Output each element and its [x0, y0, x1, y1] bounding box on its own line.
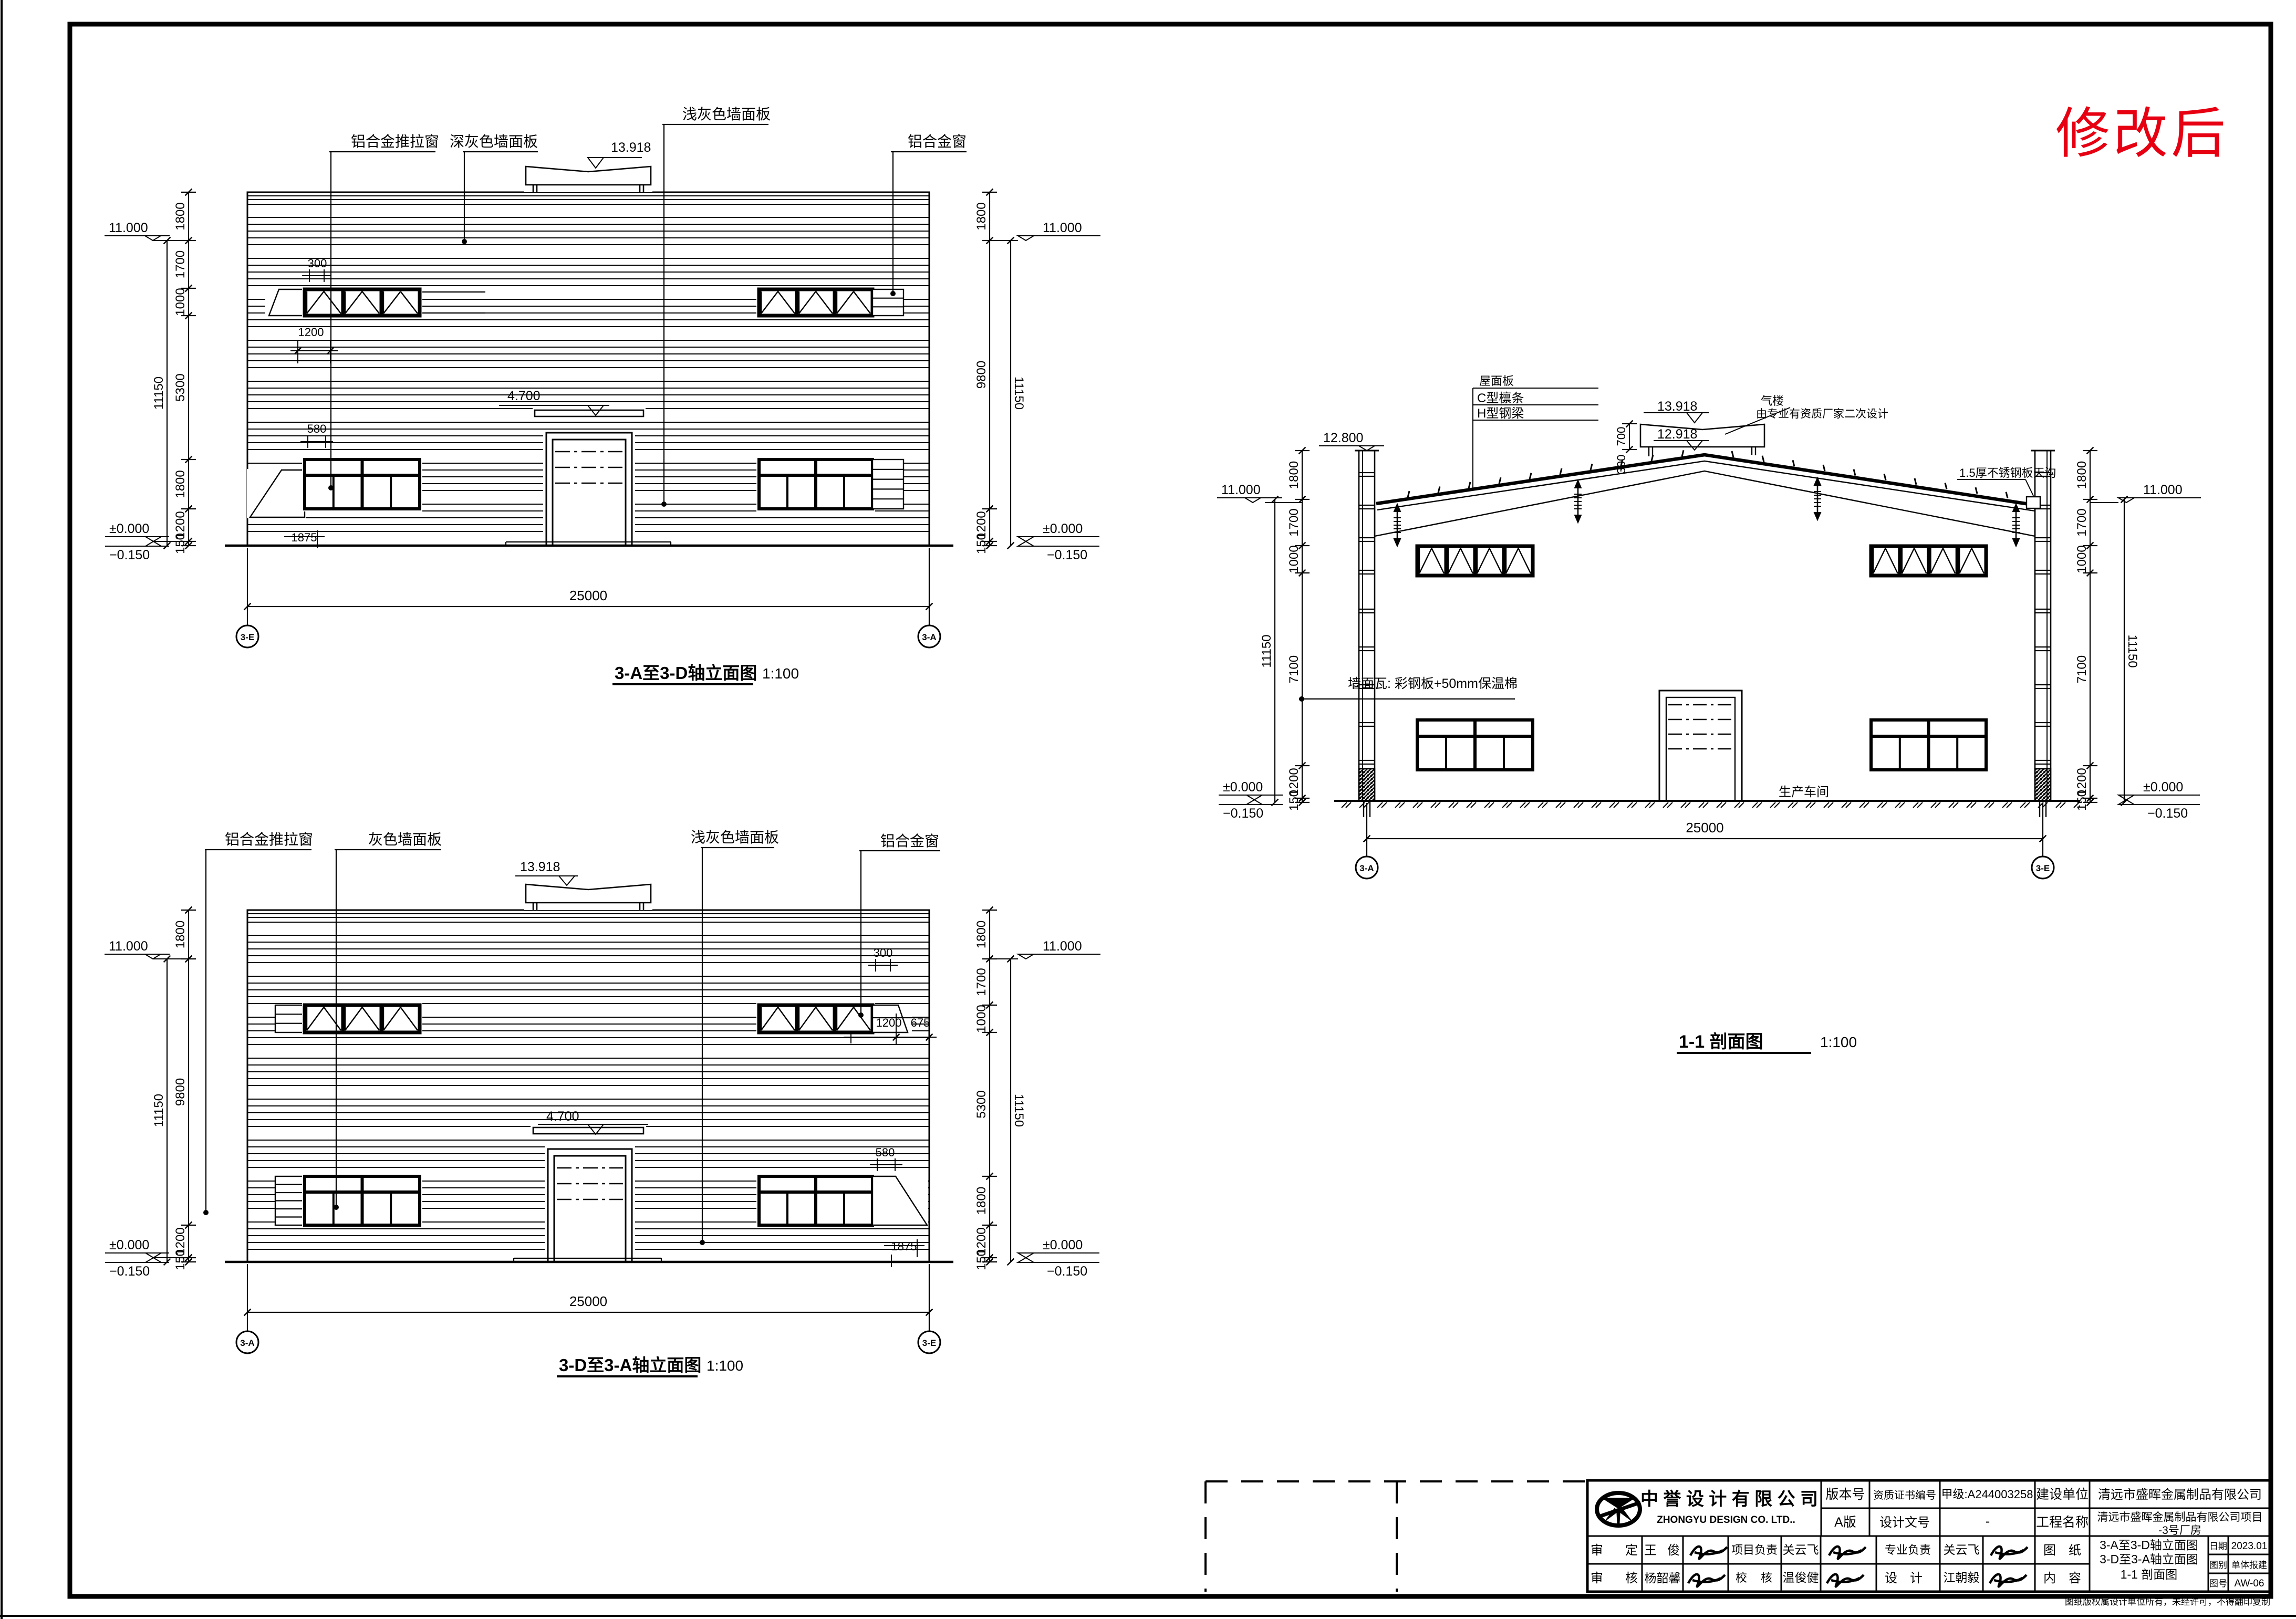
svg-text:关云飞: 关云飞	[1783, 1543, 1819, 1557]
svg-text:±0.000: ±0.000	[109, 521, 149, 536]
svg-text:浅灰色墙面板: 浅灰色墙面板	[691, 829, 779, 845]
svg-text:1:100: 1:100	[1820, 1034, 1857, 1050]
svg-text:AW-06: AW-06	[2234, 1578, 2264, 1589]
svg-text:深灰色墙面板: 深灰色墙面板	[450, 133, 538, 150]
svg-text:1-1 剖面图: 1-1 剖面图	[2121, 1568, 2178, 1581]
svg-text:1800: 1800	[173, 921, 188, 948]
svg-text:1800: 1800	[2075, 461, 2089, 489]
svg-text:H型钢梁: H型钢梁	[1477, 406, 1524, 421]
svg-text:单体报建: 单体报建	[2231, 1560, 2267, 1570]
svg-text:生产车间: 生产车间	[1779, 785, 1829, 799]
svg-text:11.000: 11.000	[2143, 483, 2183, 497]
svg-text:灰色墙面板: 灰色墙面板	[368, 831, 442, 848]
svg-text:25000: 25000	[569, 588, 607, 603]
svg-text:5300: 5300	[974, 1090, 989, 1118]
svg-text:核: 核	[1625, 1571, 1638, 1585]
svg-text:1875: 1875	[292, 531, 317, 544]
svg-text:300: 300	[874, 946, 893, 959]
svg-text:150: 150	[974, 1249, 989, 1270]
svg-text:关云飞: 关云飞	[1944, 1543, 1980, 1557]
svg-text:12.918: 12.918	[1657, 427, 1697, 442]
svg-text:1000: 1000	[1287, 545, 1301, 573]
svg-text:资质证书编号: 资质证书编号	[1873, 1489, 1936, 1501]
svg-text:王: 王	[1644, 1543, 1657, 1558]
svg-text:C型檩条: C型檩条	[1477, 391, 1524, 405]
svg-text:3-A: 3-A	[1359, 863, 1374, 873]
svg-text:7100: 7100	[2075, 655, 2089, 683]
svg-text:铝合金推拉窗: 铝合金推拉窗	[225, 831, 313, 848]
svg-text:1700: 1700	[173, 250, 188, 278]
svg-text:1000: 1000	[2075, 545, 2089, 573]
svg-text:−0.150: −0.150	[1047, 548, 1087, 562]
svg-text:铝合金窗: 铝合金窗	[908, 133, 967, 150]
svg-text:修改后: 修改后	[2055, 104, 2229, 164]
svg-text:11.000: 11.000	[109, 939, 148, 954]
svg-text:±0.000: ±0.000	[1043, 1238, 1083, 1252]
svg-text:3-E: 3-E	[2036, 863, 2050, 873]
svg-text:1000: 1000	[974, 1005, 989, 1032]
svg-text:温俊健: 温俊健	[1783, 1571, 1819, 1584]
svg-text:11150: 11150	[1012, 1094, 1026, 1127]
svg-text:1875: 1875	[891, 1240, 917, 1253]
svg-text:3-D至3-A轴立面图: 3-D至3-A轴立面图	[559, 1355, 701, 1375]
svg-text:675: 675	[911, 1016, 930, 1029]
svg-text:1800: 1800	[974, 921, 989, 948]
svg-text:580: 580	[307, 422, 327, 435]
svg-text:12.800: 12.800	[1323, 431, 1363, 445]
svg-text:审: 审	[1591, 1543, 1603, 1558]
svg-text:杨韶馨: 杨韶馨	[1645, 1571, 1681, 1585]
svg-text:4.700: 4.700	[546, 1109, 579, 1124]
svg-text:清远市盛晖金属制品有限公司: 清远市盛晖金属制品有限公司	[2098, 1488, 2262, 1502]
svg-text:审: 审	[1591, 1571, 1603, 1585]
svg-text:ZHONGYU DESIGN CO. LTD..: ZHONGYU DESIGN CO. LTD..	[1657, 1514, 1795, 1526]
svg-text:150: 150	[974, 533, 989, 554]
svg-text:1800: 1800	[1287, 461, 1301, 489]
svg-text:计: 计	[1910, 1571, 1923, 1585]
svg-text:江朝毅: 江朝毅	[1944, 1571, 1980, 1584]
svg-text:设: 设	[1885, 1571, 1897, 1585]
svg-text:版本号: 版本号	[1825, 1487, 1865, 1502]
svg-text:设计文号: 设计文号	[1879, 1516, 1930, 1530]
svg-text:3-A: 3-A	[922, 632, 936, 642]
svg-text:3-A: 3-A	[240, 1338, 254, 1348]
svg-text:±0.000: ±0.000	[1223, 780, 1263, 795]
svg-text:−0.150: −0.150	[109, 1264, 150, 1279]
svg-text:11.000: 11.000	[1043, 221, 1082, 235]
svg-text:气楼: 气楼	[1761, 394, 1784, 408]
svg-text:1:100: 1:100	[762, 665, 799, 682]
svg-text:容: 容	[2069, 1571, 2081, 1585]
svg-text:25000: 25000	[1686, 820, 1723, 835]
svg-text:11.000: 11.000	[109, 221, 148, 235]
svg-text:1200: 1200	[298, 326, 324, 339]
svg-text:−0.150: −0.150	[109, 548, 150, 562]
svg-text:7100: 7100	[1287, 655, 1301, 683]
svg-text:1-1 剖面图: 1-1 剖面图	[1679, 1032, 1763, 1052]
svg-text:清远市盛晖金属制品有限公司项目: 清远市盛晖金属制品有限公司项目	[2097, 1511, 2263, 1523]
svg-text:700: 700	[1615, 427, 1628, 446]
svg-text:−0.150: −0.150	[1047, 1264, 1087, 1279]
svg-text:3-E: 3-E	[922, 1338, 936, 1348]
svg-text:由专业有资质厂家二次设计: 由专业有资质厂家二次设计	[1756, 408, 1888, 420]
svg-text:11150: 11150	[1012, 377, 1026, 410]
svg-text:1.5厚不锈钢板天沟: 1.5厚不锈钢板天沟	[1959, 466, 2056, 479]
svg-text:1700: 1700	[974, 968, 989, 996]
svg-text:项目负责: 项目负责	[1731, 1543, 1778, 1557]
svg-text:11150: 11150	[152, 377, 166, 410]
svg-text:图: 图	[2043, 1543, 2056, 1558]
svg-text:−0.150: −0.150	[1223, 806, 1263, 821]
svg-text:3-A至3-D轴立面图: 3-A至3-D轴立面图	[615, 663, 757, 683]
svg-text:中 誉 设 计 有 限 公 司: 中 誉 设 计 有 限 公 司	[1640, 1489, 1818, 1509]
svg-text:1000: 1000	[173, 288, 188, 316]
svg-text:建设单位: 建设单位	[2036, 1487, 2089, 1502]
svg-text:图别: 图别	[2209, 1560, 2227, 1570]
svg-text:2023.01: 2023.01	[2231, 1541, 2268, 1552]
svg-text:4.700: 4.700	[507, 389, 541, 403]
svg-text:-: -	[1986, 1514, 1990, 1529]
svg-text:±0.000: ±0.000	[2143, 780, 2183, 795]
svg-text:±0.000: ±0.000	[1043, 521, 1083, 536]
svg-text:1800: 1800	[173, 470, 188, 498]
svg-text:11.000: 11.000	[1043, 939, 1082, 954]
svg-text:图号: 图号	[2209, 1579, 2227, 1589]
svg-text:屋面板: 屋面板	[1479, 374, 1514, 388]
svg-text:11.000: 11.000	[1221, 483, 1261, 497]
svg-text:俊: 俊	[1667, 1543, 1680, 1558]
svg-text:13.918: 13.918	[611, 140, 651, 155]
svg-text:580: 580	[876, 1146, 895, 1159]
svg-text:3-D至3-A轴立面图: 3-D至3-A轴立面图	[2100, 1552, 2198, 1566]
svg-text:1800: 1800	[974, 202, 989, 230]
svg-text:150: 150	[173, 1249, 188, 1270]
svg-text:浅灰色墙面板: 浅灰色墙面板	[682, 106, 771, 122]
svg-text:3-E: 3-E	[241, 632, 254, 642]
svg-text:11150: 11150	[2125, 634, 2139, 667]
svg-text:300: 300	[308, 257, 327, 270]
svg-text:专业负责: 专业负责	[1885, 1543, 1931, 1557]
svg-text:9800: 9800	[173, 1078, 188, 1106]
svg-text:11150: 11150	[152, 1094, 166, 1127]
svg-text:1700: 1700	[2075, 508, 2089, 536]
svg-text:13.918: 13.918	[520, 860, 560, 874]
svg-text:150: 150	[173, 533, 188, 554]
svg-text:−0.150: −0.150	[2147, 806, 2188, 821]
svg-text:9800: 9800	[974, 361, 989, 389]
svg-text:1800: 1800	[974, 1187, 989, 1215]
svg-text:1700: 1700	[1287, 508, 1301, 536]
svg-text:150: 150	[1287, 790, 1301, 811]
svg-text:图纸版权属设计单位所有，未经许可，不得翻印复制: 图纸版权属设计单位所有，未经许可，不得翻印复制	[2065, 1597, 2270, 1607]
svg-text:墙面瓦: 彩钢板+50mm保温棉: 墙面瓦: 彩钢板+50mm保温棉	[1348, 676, 1518, 691]
svg-text:甲级:A244003258: 甲级:A244003258	[1941, 1488, 2033, 1501]
svg-text:-3号厂房: -3号厂房	[2158, 1524, 2201, 1537]
svg-text:纸: 纸	[2069, 1543, 2081, 1558]
svg-text:25000: 25000	[569, 1293, 607, 1309]
svg-text:铝合金窗: 铝合金窗	[880, 833, 939, 849]
svg-text:校: 校	[1736, 1571, 1747, 1584]
svg-text:铝合金推拉窗: 铝合金推拉窗	[351, 133, 439, 150]
svg-text:日期: 日期	[2209, 1541, 2227, 1551]
svg-text:内: 内	[2043, 1571, 2056, 1585]
svg-text:5300: 5300	[173, 373, 188, 401]
svg-text:300: 300	[1615, 455, 1628, 474]
svg-text:核: 核	[1761, 1571, 1772, 1584]
svg-text:11150: 11150	[1260, 634, 1274, 667]
svg-text:工程名称: 工程名称	[2036, 1515, 2089, 1530]
svg-text:定: 定	[1625, 1543, 1638, 1558]
svg-text:150: 150	[2075, 790, 2089, 811]
svg-text:A版: A版	[1834, 1515, 1856, 1530]
svg-text:13.918: 13.918	[1657, 399, 1697, 414]
svg-text:1200: 1200	[876, 1016, 902, 1029]
svg-text:1800: 1800	[173, 202, 188, 230]
svg-text:3-A至3-D轴立面图: 3-A至3-D轴立面图	[2100, 1538, 2198, 1552]
svg-text:1:100: 1:100	[707, 1357, 743, 1374]
svg-text:±0.000: ±0.000	[109, 1238, 149, 1252]
